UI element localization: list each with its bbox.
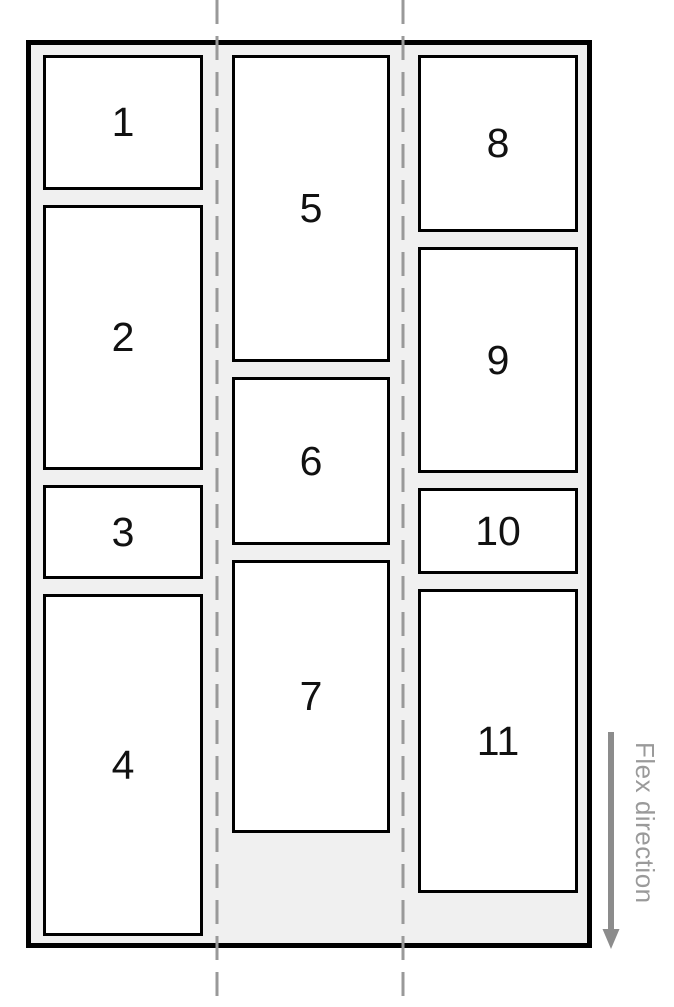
flex-direction-label: Flex direction bbox=[629, 742, 660, 904]
flex-container: 1 2 3 4 5 6 7 8 9 10 11 bbox=[26, 40, 592, 948]
flex-item-3: 3 bbox=[43, 485, 203, 579]
flex-direction-arrow bbox=[603, 732, 620, 949]
flexbox-wrap-diagram: 1 2 3 4 5 6 7 8 9 10 11 Flex direction bbox=[0, 0, 674, 1007]
flex-item-11: 11 bbox=[418, 589, 578, 893]
flex-column-1: 1 2 3 4 bbox=[43, 55, 203, 936]
flex-item-5: 5 bbox=[232, 55, 390, 362]
flex-item-2: 2 bbox=[43, 205, 203, 470]
flex-item-4: 4 bbox=[43, 594, 203, 936]
flex-item-10: 10 bbox=[418, 488, 578, 574]
flex-item-7: 7 bbox=[232, 560, 390, 833]
flex-item-8: 8 bbox=[418, 55, 578, 232]
flex-item-1: 1 bbox=[43, 55, 203, 190]
flex-item-6: 6 bbox=[232, 377, 390, 545]
flex-column-3: 8 9 10 11 bbox=[418, 55, 578, 893]
flex-column-2: 5 6 7 bbox=[232, 55, 390, 833]
flex-item-9: 9 bbox=[418, 247, 578, 473]
